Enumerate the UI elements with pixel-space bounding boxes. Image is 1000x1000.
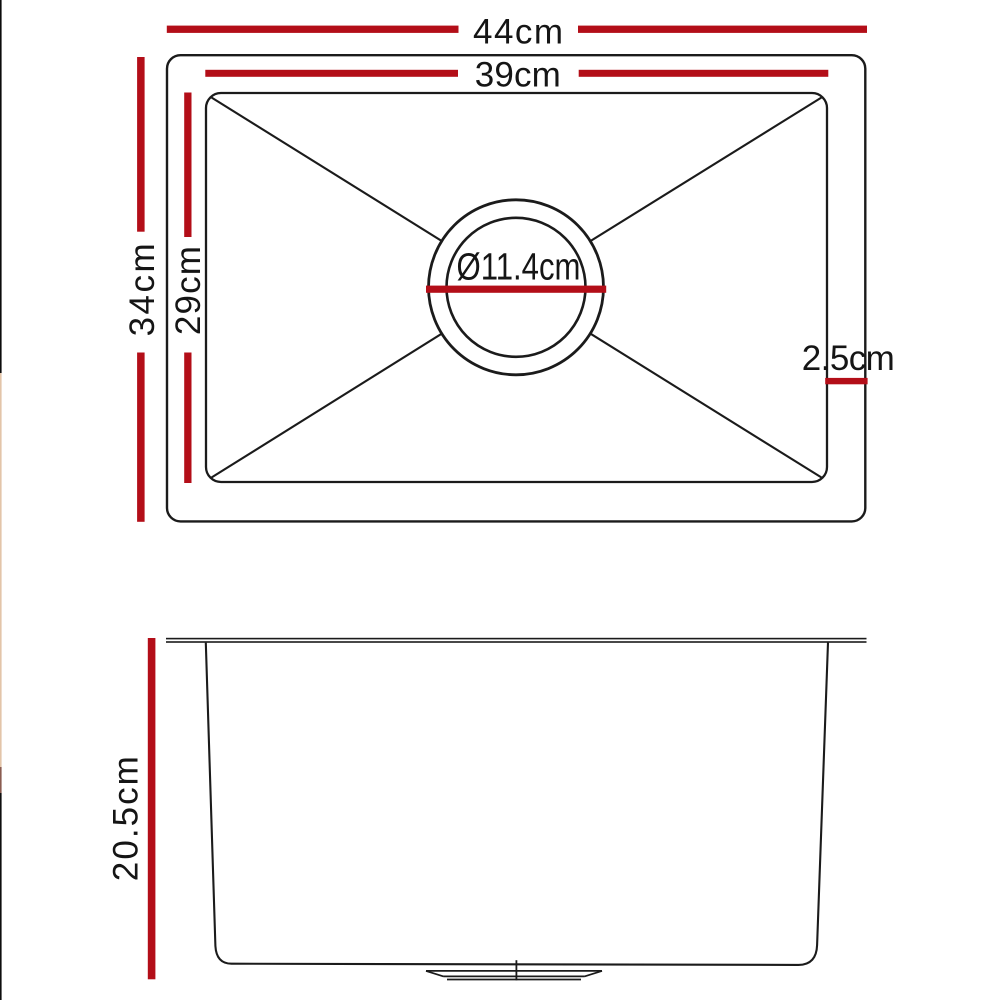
- svg-text:20.5cm: 20.5cm: [107, 756, 146, 881]
- svg-text:2.5cm: 2.5cm: [802, 339, 895, 378]
- svg-text:39cm: 39cm: [475, 55, 561, 94]
- svg-text:44cm: 44cm: [473, 12, 563, 51]
- svg-text:Ø11.4cm: Ø11.4cm: [457, 246, 581, 288]
- svg-text:34cm: 34cm: [123, 243, 162, 336]
- svg-text:29cm: 29cm: [169, 246, 208, 335]
